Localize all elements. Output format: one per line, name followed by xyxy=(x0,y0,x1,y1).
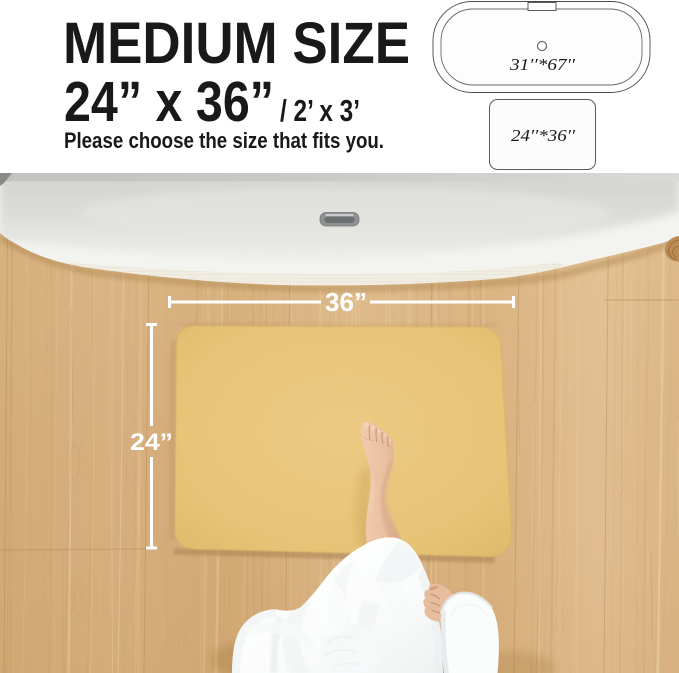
svg-text:24”: 24” xyxy=(130,429,173,456)
svg-text:24” x 36”: 24” x 36” xyxy=(64,70,274,134)
svg-text:/ 2’ x 3’: / 2’ x 3’ xyxy=(280,93,360,128)
svg-text:24′′*36′′: 24′′*36′′ xyxy=(511,126,575,145)
svg-text:31′′*67′′: 31′′*67′′ xyxy=(509,55,575,74)
svg-text:36”: 36” xyxy=(325,287,367,317)
svg-text:Please choose the size that fi: Please choose the size that fits you. xyxy=(64,128,384,153)
svg-text:MEDIUM SIZE: MEDIUM SIZE xyxy=(63,11,410,76)
